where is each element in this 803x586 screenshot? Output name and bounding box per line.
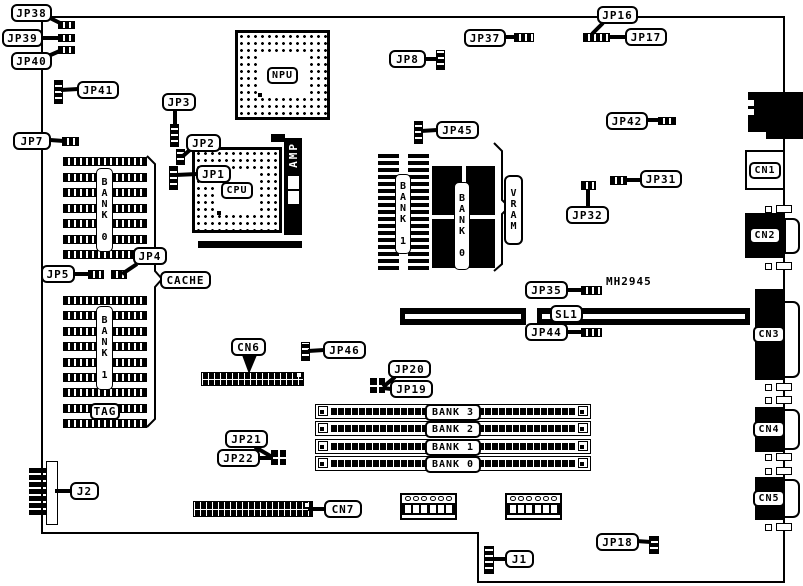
jp35-jumper [581,286,602,295]
callout-jp39: JP39 [2,29,43,47]
callout-jp16: JP16 [597,6,638,24]
simm-bank3-label: BANK 3 [425,404,481,421]
amp-top-piece [271,134,285,142]
cn5-connector: CN5 [755,477,783,520]
screw-slot [776,383,792,391]
callout-jp7: JP7 [13,132,51,150]
jp45-jumper [414,121,423,144]
part-number-text: MH2945 [606,275,652,288]
simm-slot-bank2: BANK 2 [315,421,591,436]
cpu-pin1-dot [217,211,221,215]
callout-jp8: JP8 [389,50,426,68]
j2-pin [29,503,47,508]
screw-slot [776,523,792,531]
cn7-header [193,501,313,517]
jp41-jumper [54,80,63,104]
cache-bank1-label: BANK 1 [96,306,113,390]
cn3-connector: CN3 [755,289,783,380]
npu-pin1-dot [258,93,262,97]
cn4-connector: CN4 [755,407,783,452]
callout-cn7: CN7 [324,500,362,518]
cn3-dsub [783,301,800,378]
amp-label: AMP [287,142,300,168]
cpu-socket: CPU [192,147,282,233]
callout-jp44: JP44 [525,323,568,341]
simm-slot-bank3: BANK 3 [315,404,591,419]
cn4-label: CN4 [753,421,784,438]
callout-jp21: JP21 [225,430,268,448]
cn6-header-key [297,373,301,377]
cn1-label: CN1 [749,162,780,179]
screw-slot [776,205,792,213]
callout-jp46: JP46 [323,341,366,359]
callout-jp18: JP18 [596,533,639,551]
vram-label: VRAM [504,175,523,245]
jp1-jumper [169,166,178,190]
cpu-bottom-bar [198,241,302,248]
screw-hole [765,263,772,270]
callout-jp4: JP4 [133,247,167,265]
cn2-connector: CN2 [745,213,785,258]
cn2-label: CN2 [749,227,780,244]
jp3-jumper [170,124,179,147]
callout-jp1: JP1 [196,165,231,183]
jp38-jumper [58,21,75,29]
screw-hole [765,468,772,475]
npu-label: NPU [267,67,298,84]
callout-jp31: JP31 [640,170,682,188]
jp39-jumper [58,34,75,42]
callout-jp42: JP42 [606,112,648,130]
cn7-header-key [305,503,309,507]
jp18-jumper [649,536,659,554]
keyboard-din-connector [748,92,803,132]
npu-socket: NPU [235,30,330,120]
jp5-jumper [88,270,104,279]
cache-bank0-label: BANK 0 [96,168,113,252]
terminal-block-1 [400,493,457,520]
callout-jp37: JP37 [464,29,506,47]
jp32-jumper [581,181,596,190]
callout-j2: J2 [70,482,99,500]
cn4-dsub [783,409,800,450]
callout-cache: CACHE [160,271,211,289]
callout-jp45: JP45 [436,121,479,139]
vram-bank0-label: BANK 0 [454,182,470,270]
callout-jp35: JP35 [525,281,568,299]
simm-slot-bank0: BANK 0 [315,456,591,471]
screw-slot [776,396,792,404]
tag-label: TAG [90,403,120,420]
jp42-jumper [658,117,676,125]
j2-pin [29,468,47,473]
cn3-label: CN3 [753,326,784,343]
keyboard-din-tail [766,132,803,139]
cpu-label: CPU [221,182,252,199]
j2-connector-body [46,461,58,525]
callout-jp22: JP22 [217,449,260,467]
vram-bank1-label: BANK 1 [395,174,411,254]
callout-j1: J1 [505,550,534,568]
amp-window-2 [288,191,299,204]
jp2-jumper [176,149,185,165]
cn1-connector: CN1 [745,150,785,190]
j2-pin [29,496,47,501]
jp37-jumper [514,33,534,42]
callout-sl1: SL1 [550,305,583,323]
jp40-jumper [58,46,75,54]
simm-bank1-label: BANK 1 [425,439,481,456]
callout-jp20: JP20 [388,360,431,378]
callout-jp41: JP41 [77,81,119,99]
screw-hole [765,397,772,404]
callout-jp3: JP3 [162,93,196,111]
terminal-block-2 [505,493,562,520]
simm-bank2-label: BANK 2 [425,421,481,438]
jp31-jumper [610,176,627,185]
cn6-header [201,372,304,386]
jp16-jp17-jumper [583,33,610,42]
amp-window-1 [288,176,299,189]
jp21-jp22-jumper-block [271,450,286,465]
callout-jp5: JP5 [41,265,75,283]
screw-slot [776,262,792,270]
callout-jp2: JP2 [186,134,221,152]
sl1-slot-left-segment [400,308,526,325]
callout-jp40: JP40 [11,52,52,70]
simm-slot-bank1: BANK 1 [315,439,591,454]
j2-pin [29,482,47,487]
jp20-jp19-jumper-block [370,378,385,393]
j2-pin [29,510,47,515]
callout-cn6: CN6 [231,338,266,356]
simm-bank0-label: BANK 0 [425,456,481,473]
jp7-jumper [62,137,79,146]
jp4-jumper [111,270,127,279]
jp46-jumper [301,342,310,361]
cache-brace [147,156,162,427]
callout-jp32: JP32 [566,206,609,224]
cn5-label: CN5 [753,490,784,507]
screw-hole [765,206,772,213]
screw-hole [765,524,772,531]
screw-hole [765,454,772,461]
j2-pin [29,489,47,494]
motherboard-diagram: NPU CPU AMP BANK 0 BANK 1 TAG BANK 1 BAN… [0,0,803,586]
callout-jp17: JP17 [625,28,667,46]
callout-jp19: JP19 [390,380,433,398]
npu-socket-cavity: NPU [257,52,308,98]
cn2-dsub [784,218,800,254]
screw-hole [765,384,772,391]
callout-jp38: JP38 [11,4,52,22]
j1-jumper [484,546,494,574]
jp8-jumper [436,50,445,70]
cn5-dsub [783,479,800,518]
j2-pin [29,475,47,480]
screw-slot [776,453,792,461]
screw-slot [776,467,792,475]
jp44-jumper [581,328,602,337]
